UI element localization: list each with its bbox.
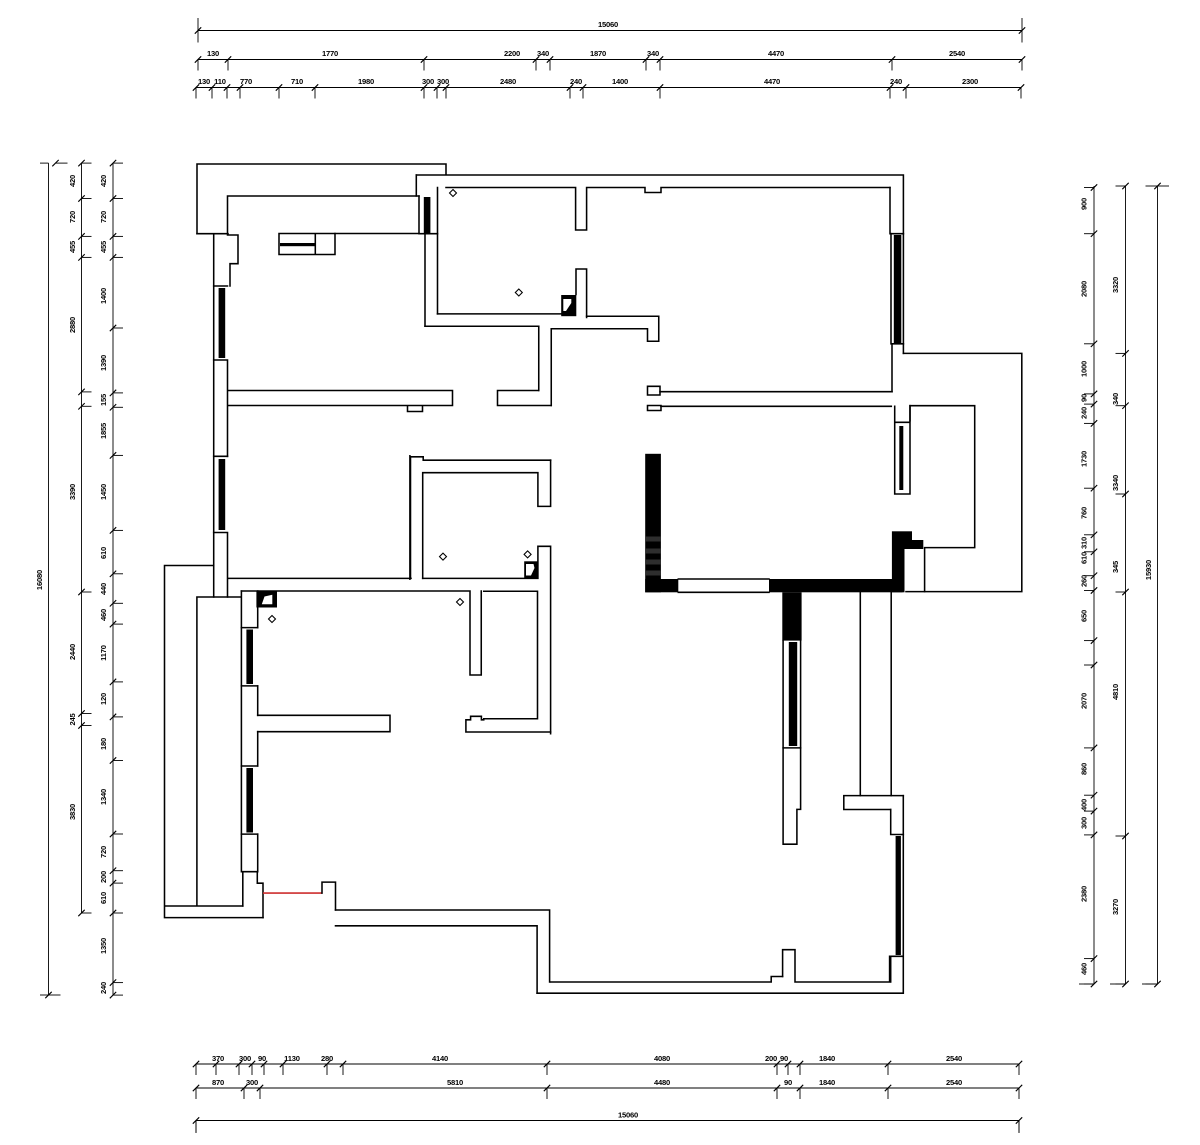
svg-text:610: 610: [99, 892, 108, 904]
svg-text:4810: 4810: [1111, 684, 1120, 700]
svg-text:4470: 4470: [764, 77, 780, 86]
svg-text:770: 770: [240, 77, 252, 86]
svg-text:300: 300: [246, 1078, 258, 1087]
svg-text:460: 460: [1080, 963, 1089, 975]
svg-text:420: 420: [68, 175, 77, 187]
svg-text:1390: 1390: [99, 355, 108, 371]
svg-text:2080: 2080: [1080, 281, 1089, 297]
svg-text:180: 180: [99, 738, 108, 750]
svg-text:1980: 1980: [358, 77, 374, 86]
svg-text:3830: 3830: [68, 804, 77, 820]
svg-text:2380: 2380: [1080, 886, 1089, 902]
svg-text:345: 345: [1111, 560, 1120, 573]
svg-text:260: 260: [1080, 575, 1089, 587]
svg-text:300: 300: [422, 77, 434, 86]
svg-text:1840: 1840: [819, 1054, 835, 1063]
svg-text:240: 240: [890, 77, 902, 86]
svg-text:90: 90: [1080, 394, 1089, 402]
svg-text:2540: 2540: [946, 1078, 962, 1087]
svg-text:15930: 15930: [1144, 560, 1153, 580]
svg-text:1450: 1450: [99, 484, 108, 500]
svg-text:340: 340: [537, 49, 549, 58]
svg-text:370: 370: [212, 1054, 224, 1063]
svg-text:4080: 4080: [654, 1054, 670, 1063]
svg-text:1870: 1870: [590, 49, 606, 58]
svg-text:1855: 1855: [99, 422, 108, 439]
svg-text:300: 300: [437, 77, 449, 86]
svg-text:4140: 4140: [432, 1054, 448, 1063]
svg-text:120: 120: [99, 693, 108, 705]
svg-text:155: 155: [99, 393, 108, 406]
svg-text:2540: 2540: [949, 49, 965, 58]
svg-text:280: 280: [321, 1054, 333, 1063]
svg-text:440: 440: [99, 583, 108, 595]
svg-text:130: 130: [207, 49, 219, 58]
svg-text:1170: 1170: [99, 645, 108, 661]
svg-text:240: 240: [1080, 407, 1089, 419]
svg-text:300: 300: [1080, 817, 1089, 829]
svg-text:1340: 1340: [99, 789, 108, 805]
svg-text:4480: 4480: [654, 1078, 670, 1087]
svg-text:1000: 1000: [1080, 361, 1089, 377]
svg-text:610: 610: [99, 547, 108, 559]
svg-text:2880: 2880: [68, 317, 77, 333]
svg-text:245: 245: [68, 712, 77, 725]
svg-text:16080: 16080: [35, 570, 44, 590]
svg-text:130: 130: [198, 77, 210, 86]
svg-text:1400: 1400: [99, 288, 108, 304]
svg-text:3340: 3340: [1111, 475, 1120, 491]
svg-text:3390: 3390: [68, 484, 77, 500]
svg-text:300: 300: [239, 1054, 251, 1063]
svg-text:200: 200: [99, 871, 108, 883]
svg-text:710: 710: [291, 77, 303, 86]
svg-text:15060: 15060: [598, 20, 618, 29]
svg-text:1130: 1130: [284, 1054, 300, 1063]
svg-text:2480: 2480: [500, 77, 516, 86]
svg-text:310: 310: [1080, 537, 1089, 549]
svg-text:455: 455: [99, 240, 108, 253]
svg-text:460: 460: [99, 609, 108, 621]
svg-text:860: 860: [1080, 763, 1089, 775]
svg-text:870: 870: [212, 1078, 224, 1087]
svg-text:340: 340: [647, 49, 659, 58]
svg-text:420: 420: [99, 175, 108, 187]
svg-text:1350: 1350: [99, 938, 108, 954]
svg-text:90: 90: [780, 1054, 788, 1063]
svg-text:2200: 2200: [504, 49, 520, 58]
svg-text:90: 90: [784, 1078, 792, 1087]
svg-text:240: 240: [99, 982, 108, 994]
svg-text:240: 240: [570, 77, 582, 86]
svg-text:3270: 3270: [1111, 899, 1120, 915]
svg-text:2540: 2540: [946, 1054, 962, 1063]
svg-text:455: 455: [68, 240, 77, 253]
svg-text:1400: 1400: [612, 77, 628, 86]
svg-text:1840: 1840: [819, 1078, 835, 1087]
svg-text:3320: 3320: [1111, 277, 1120, 293]
svg-text:2070: 2070: [1080, 693, 1089, 709]
svg-text:5810: 5810: [447, 1078, 463, 1087]
svg-text:720: 720: [99, 211, 108, 223]
svg-text:1770: 1770: [322, 49, 338, 58]
svg-text:900: 900: [1080, 198, 1089, 210]
svg-text:340: 340: [1111, 393, 1120, 405]
svg-text:610: 610: [1080, 552, 1089, 564]
svg-text:2300: 2300: [962, 77, 978, 86]
svg-text:110: 110: [214, 77, 226, 86]
svg-text:720: 720: [68, 211, 77, 223]
svg-text:720: 720: [99, 846, 108, 858]
svg-text:400: 400: [1080, 799, 1089, 811]
svg-text:650: 650: [1080, 610, 1089, 622]
svg-text:760: 760: [1080, 507, 1089, 519]
svg-text:90: 90: [258, 1054, 266, 1063]
svg-text:4470: 4470: [768, 49, 784, 58]
svg-text:1730: 1730: [1080, 451, 1089, 467]
svg-text:15060: 15060: [618, 1111, 638, 1120]
svg-text:200: 200: [765, 1054, 777, 1063]
svg-text:2440: 2440: [68, 644, 77, 660]
